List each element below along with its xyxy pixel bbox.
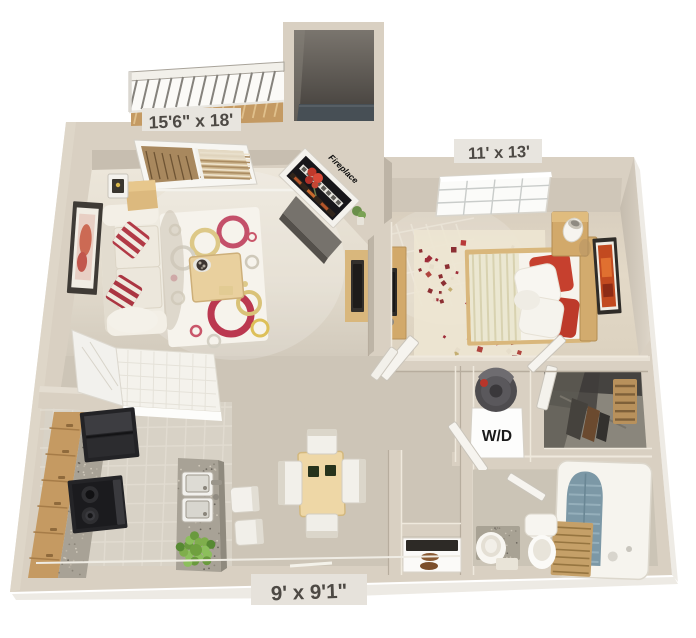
svg-text:W/D: W/D: [482, 428, 512, 445]
svg-text:15'6" x 18': 15'6" x 18': [148, 110, 233, 133]
svg-text:11' x 13': 11' x 13': [468, 143, 531, 163]
svg-text:9' x 9'1": 9' x 9'1": [270, 580, 347, 606]
